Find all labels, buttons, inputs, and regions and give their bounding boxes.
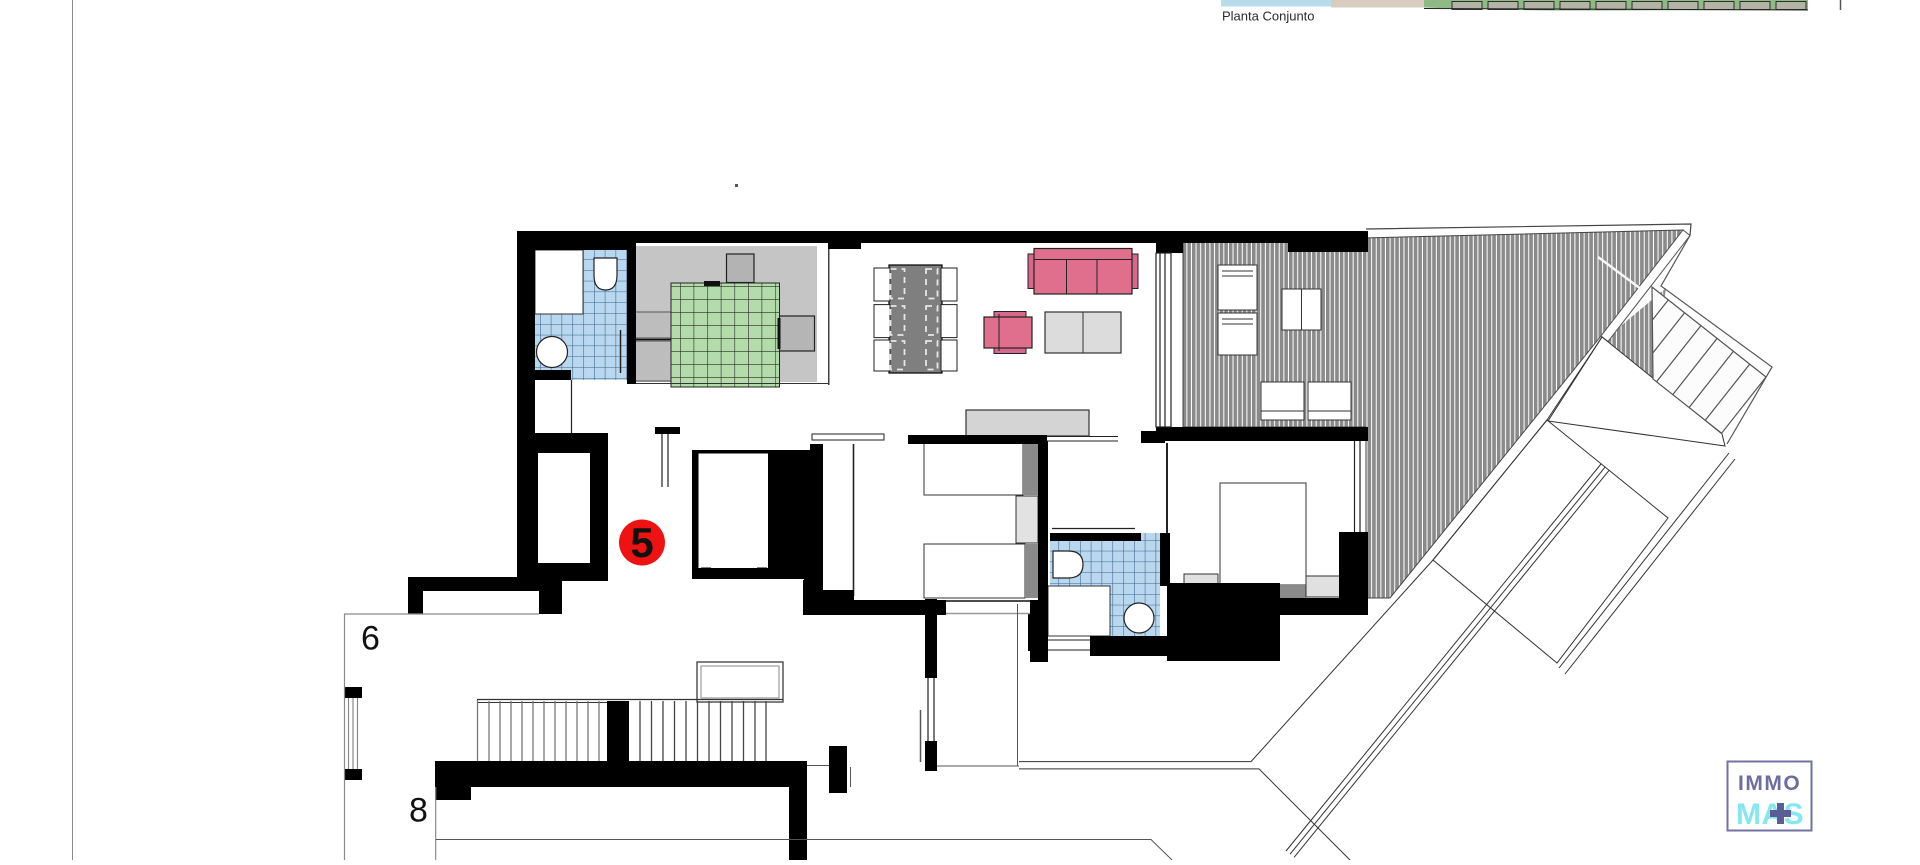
svg-text:6: 6: [361, 620, 380, 658]
svg-text:5: 5: [630, 519, 653, 566]
svg-text:IMMO: IMMO: [1738, 772, 1801, 795]
svg-text:8: 8: [409, 792, 428, 830]
svg-text:Planta Conjunto: Planta Conjunto: [1222, 9, 1315, 24]
